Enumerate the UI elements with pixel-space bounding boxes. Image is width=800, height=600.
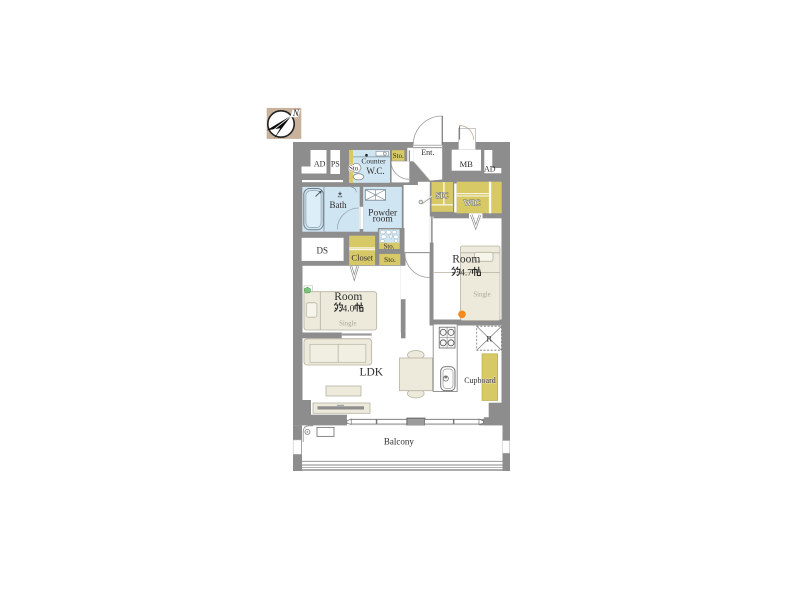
svg-text:WIC: WIC (464, 197, 481, 207)
svg-text:Room: Room (452, 253, 480, 265)
svg-text:4.0: 4.0 (342, 304, 354, 314)
svg-text:SIC: SIC (436, 191, 448, 200)
svg-text:PS: PS (331, 159, 340, 168)
svg-text:room: room (373, 215, 394, 225)
svg-text:LDK: LDK (359, 367, 383, 379)
svg-text:4.7: 4.7 (460, 269, 472, 279)
svg-text:Bath: Bath (330, 200, 347, 210)
svg-text:N: N (292, 108, 300, 118)
svg-text:Single: Single (339, 321, 356, 328)
svg-text:Sto.: Sto. (384, 244, 395, 251)
svg-text:DS: DS (317, 246, 329, 256)
svg-text:MB: MB (460, 159, 474, 169)
svg-text:Sto.: Sto. (384, 255, 396, 264)
svg-text:Sto.: Sto. (349, 165, 360, 173)
svg-text:Sto.: Sto. (393, 152, 404, 160)
svg-text:W.C.: W.C. (366, 166, 384, 176)
svg-text:Room: Room (334, 291, 362, 303)
svg-text:Ent.: Ent. (421, 148, 434, 157)
svg-text:Single: Single (473, 291, 490, 298)
svg-text:AD: AD (484, 165, 496, 174)
svg-text:AD: AD (314, 159, 326, 168)
svg-text:Closet: Closet (351, 252, 373, 262)
svg-text:Balcony: Balcony (384, 437, 414, 447)
svg-text:R: R (486, 333, 492, 343)
svg-text:Counter: Counter (361, 157, 386, 166)
svg-text:Cupboard: Cupboard (464, 376, 496, 385)
